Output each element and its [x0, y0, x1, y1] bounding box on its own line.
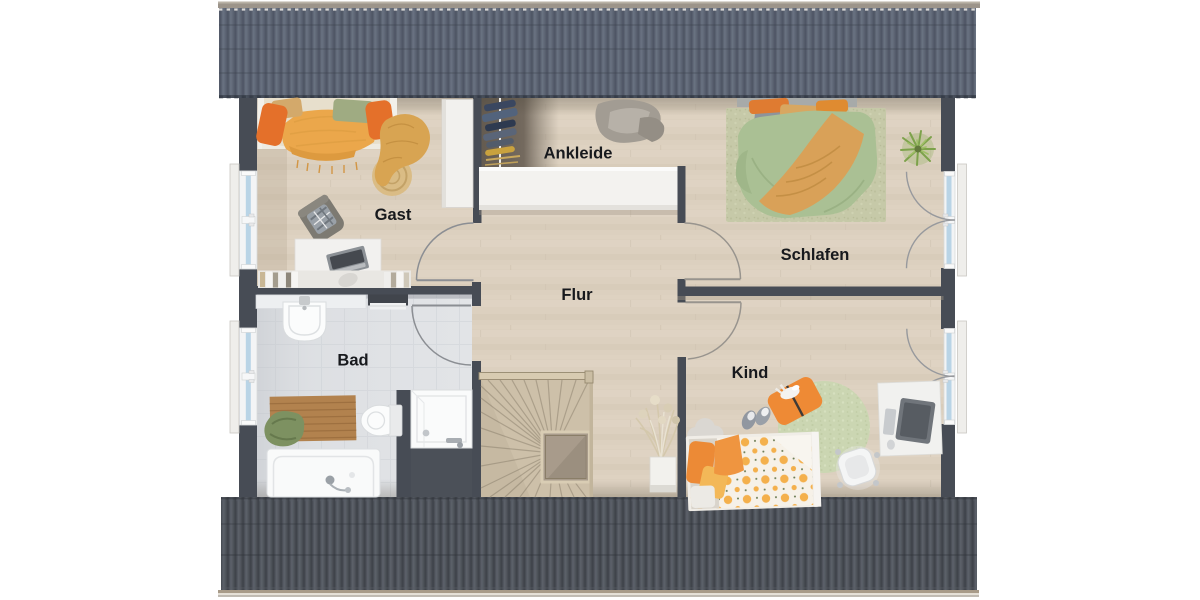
- svg-text:Kind: Kind: [732, 364, 769, 382]
- svg-text:Schlafen: Schlafen: [781, 246, 850, 264]
- svg-text:Bad: Bad: [337, 352, 368, 370]
- svg-text:Flur: Flur: [561, 286, 593, 304]
- svg-text:Ankleide: Ankleide: [544, 145, 613, 163]
- svg-text:Gast: Gast: [375, 206, 412, 224]
